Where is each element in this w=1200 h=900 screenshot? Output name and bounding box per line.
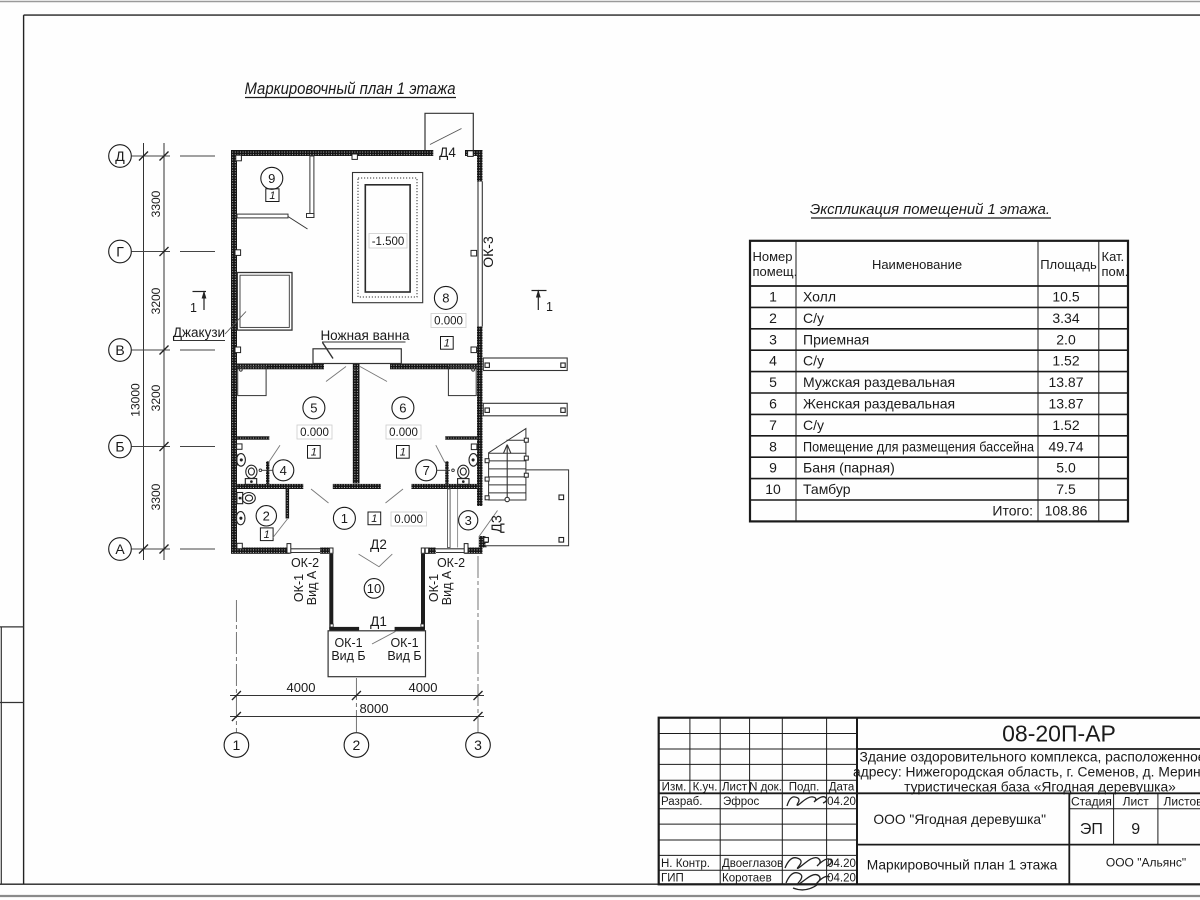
svg-text:Дата: Дата xyxy=(829,782,855,794)
svg-text:4: 4 xyxy=(280,463,287,478)
svg-text:ООО "Ягодная деревушка": ООО "Ягодная деревушка" xyxy=(873,812,1046,827)
svg-text:туристическая база «Ягодная де: туристическая база «Ягодная деревушка» xyxy=(904,780,1176,795)
svg-text:ОК-3: ОК-3 xyxy=(480,236,496,268)
svg-text:3.34: 3.34 xyxy=(1052,310,1079,326)
svg-text:Н. Контр.: Н. Контр. xyxy=(661,858,710,870)
svg-text:1.52: 1.52 xyxy=(1052,417,1079,433)
svg-text:N док.: N док. xyxy=(749,782,782,794)
svg-text:6: 6 xyxy=(399,401,406,416)
svg-text:10: 10 xyxy=(765,481,781,497)
svg-text:Здание оздоровительного компле: Здание оздоровительного комплекса, распо… xyxy=(860,750,1200,765)
svg-text:13.87: 13.87 xyxy=(1048,374,1083,390)
svg-text:13000: 13000 xyxy=(129,383,143,417)
svg-text:Номер: Номер xyxy=(753,249,793,264)
svg-text:Ножная ванна: Ножная ванна xyxy=(320,328,410,343)
svg-text:Двоеглазов: Двоеглазов xyxy=(722,858,783,870)
svg-text:ООО "Альянс": ООО "Альянс" xyxy=(1106,856,1186,870)
svg-text:Наименование: Наименование xyxy=(872,257,962,272)
svg-text:04.20: 04.20 xyxy=(827,796,856,808)
svg-text:ГИП: ГИП xyxy=(661,873,684,885)
svg-text:9: 9 xyxy=(1131,821,1140,838)
svg-text:Приемная: Приемная xyxy=(803,331,869,347)
svg-text:1: 1 xyxy=(269,190,275,202)
svg-text:Вид А: Вид А xyxy=(440,570,454,605)
svg-text:3200: 3200 xyxy=(149,384,163,411)
svg-text:пом.: пом. xyxy=(1102,264,1129,279)
svg-text:Маркировочный план 1 этажа: Маркировочный план 1 этажа xyxy=(867,858,1058,873)
svg-text:7.5: 7.5 xyxy=(1056,481,1076,497)
svg-text:Мужская раздевальная: Мужская раздевальная xyxy=(803,374,955,390)
svg-text:0.000: 0.000 xyxy=(434,316,463,328)
svg-text:Подп.: Подп. xyxy=(789,782,820,794)
svg-text:Г: Г xyxy=(116,244,124,260)
svg-text:ОК-1: ОК-1 xyxy=(390,636,418,650)
svg-text:ОК-1: ОК-1 xyxy=(334,636,362,650)
svg-text:5: 5 xyxy=(769,374,777,390)
svg-text:Итого:: Итого: xyxy=(992,503,1033,519)
svg-text:3: 3 xyxy=(474,737,482,753)
svg-text:10.5: 10.5 xyxy=(1052,289,1079,305)
svg-text:04.20: 04.20 xyxy=(827,873,856,885)
svg-text:С/у: С/у xyxy=(803,310,824,326)
svg-text:Д4: Д4 xyxy=(439,145,456,160)
svg-text:08-20П-АР: 08-20П-АР xyxy=(1002,721,1116,747)
svg-text:8: 8 xyxy=(769,438,777,454)
svg-text:Кат.: Кат. xyxy=(1102,249,1125,264)
svg-text:10: 10 xyxy=(367,581,381,596)
svg-text:помещ.: помещ. xyxy=(753,264,798,279)
svg-text:5: 5 xyxy=(310,401,317,416)
svg-text:ОК-1: ОК-1 xyxy=(292,574,306,602)
svg-text:Изм.: Изм. xyxy=(662,782,687,794)
svg-text:Джакузи: Джакузи xyxy=(173,325,225,340)
svg-text:9: 9 xyxy=(268,171,275,186)
svg-text:5.0: 5.0 xyxy=(1056,460,1076,476)
svg-text:Женская раздевальная: Женская раздевальная xyxy=(803,396,955,412)
svg-text:Стадия: Стадия xyxy=(1071,795,1112,809)
svg-text:ОК-1: ОК-1 xyxy=(427,574,441,602)
svg-text:А: А xyxy=(115,541,125,557)
svg-text:Вид А: Вид А xyxy=(305,570,319,605)
svg-text:8000: 8000 xyxy=(360,701,389,716)
svg-text:1: 1 xyxy=(233,737,241,753)
svg-text:Помещение для размещения бассе: Помещение для размещения бассейна xyxy=(803,438,1034,454)
svg-text:1: 1 xyxy=(371,513,377,525)
svg-text:Экспликация помещений 1 этажа.: Экспликация помещений 1 этажа. xyxy=(810,201,1050,218)
svg-text:1: 1 xyxy=(190,301,197,315)
svg-text:8: 8 xyxy=(442,291,449,306)
svg-text:3200: 3200 xyxy=(149,287,163,314)
svg-text:7: 7 xyxy=(423,463,430,478)
svg-text:1: 1 xyxy=(546,300,553,314)
svg-text:0.000: 0.000 xyxy=(389,427,418,439)
svg-text:Б: Б xyxy=(115,439,124,455)
svg-text:1: 1 xyxy=(400,447,406,459)
svg-text:13.87: 13.87 xyxy=(1048,396,1083,412)
svg-text:Площадь: Площадь xyxy=(1040,257,1097,272)
svg-text:2: 2 xyxy=(353,737,361,753)
svg-text:108.86: 108.86 xyxy=(1045,503,1088,519)
svg-text:Д2: Д2 xyxy=(370,537,387,552)
svg-text:4000: 4000 xyxy=(409,680,438,695)
svg-text:0.000: 0.000 xyxy=(394,514,423,526)
svg-text:ЭП: ЭП xyxy=(1080,821,1103,838)
svg-text:1: 1 xyxy=(311,447,317,459)
svg-text:Холл: Холл xyxy=(803,289,836,305)
svg-text:Вид Б: Вид Б xyxy=(331,649,365,663)
svg-text:1.52: 1.52 xyxy=(1052,353,1079,369)
svg-text:В: В xyxy=(115,342,124,358)
svg-text:Маркировочный план 1 этажа: Маркировочный план 1 этажа xyxy=(245,80,456,98)
svg-text:Листов: Листов xyxy=(1164,795,1200,809)
svg-text:4000: 4000 xyxy=(287,680,316,695)
svg-text:Разраб.: Разраб. xyxy=(661,796,702,808)
svg-text:Тамбур: Тамбур xyxy=(803,481,851,497)
svg-text:1: 1 xyxy=(444,338,450,350)
svg-text:0.000: 0.000 xyxy=(300,427,329,439)
svg-text:Коротаев: Коротаев xyxy=(722,873,772,885)
svg-text:К.уч.: К.уч. xyxy=(693,782,718,794)
svg-text:2.0: 2.0 xyxy=(1056,331,1076,347)
svg-text:С/у: С/у xyxy=(803,353,824,369)
svg-text:3: 3 xyxy=(465,513,472,528)
svg-text:3: 3 xyxy=(769,331,777,347)
svg-text:ОК-2: ОК-2 xyxy=(291,556,319,570)
svg-text:Д1: Д1 xyxy=(370,614,387,629)
svg-text:3300: 3300 xyxy=(149,190,163,217)
svg-text:9: 9 xyxy=(769,460,777,476)
svg-text:1: 1 xyxy=(341,511,348,526)
svg-text:4: 4 xyxy=(769,353,777,369)
svg-text:Лист: Лист xyxy=(722,782,748,794)
svg-text:1: 1 xyxy=(769,289,777,305)
svg-text:2: 2 xyxy=(263,509,270,524)
svg-text:ОК-2: ОК-2 xyxy=(437,556,465,570)
svg-text:6: 6 xyxy=(769,396,777,412)
svg-text:49.74: 49.74 xyxy=(1048,438,1083,454)
svg-text:3300: 3300 xyxy=(149,483,163,510)
svg-text:1: 1 xyxy=(264,529,270,541)
svg-text:Д3: Д3 xyxy=(490,515,506,533)
svg-text:Лист: Лист xyxy=(1123,795,1150,809)
svg-text:2: 2 xyxy=(769,310,777,326)
svg-text:Баня (парная): Баня (парная) xyxy=(803,460,895,476)
svg-text:Д: Д xyxy=(115,148,125,164)
svg-text:Вид Б: Вид Б xyxy=(387,649,421,663)
svg-text:Эфрос: Эфрос xyxy=(723,796,760,808)
svg-text:С/у: С/у xyxy=(803,417,824,433)
svg-text:7: 7 xyxy=(769,417,777,433)
svg-text:адресу: Нижегородская область,: адресу: Нижегородская область, г. Семено… xyxy=(853,765,1200,780)
svg-text:-1.500: -1.500 xyxy=(372,236,405,248)
